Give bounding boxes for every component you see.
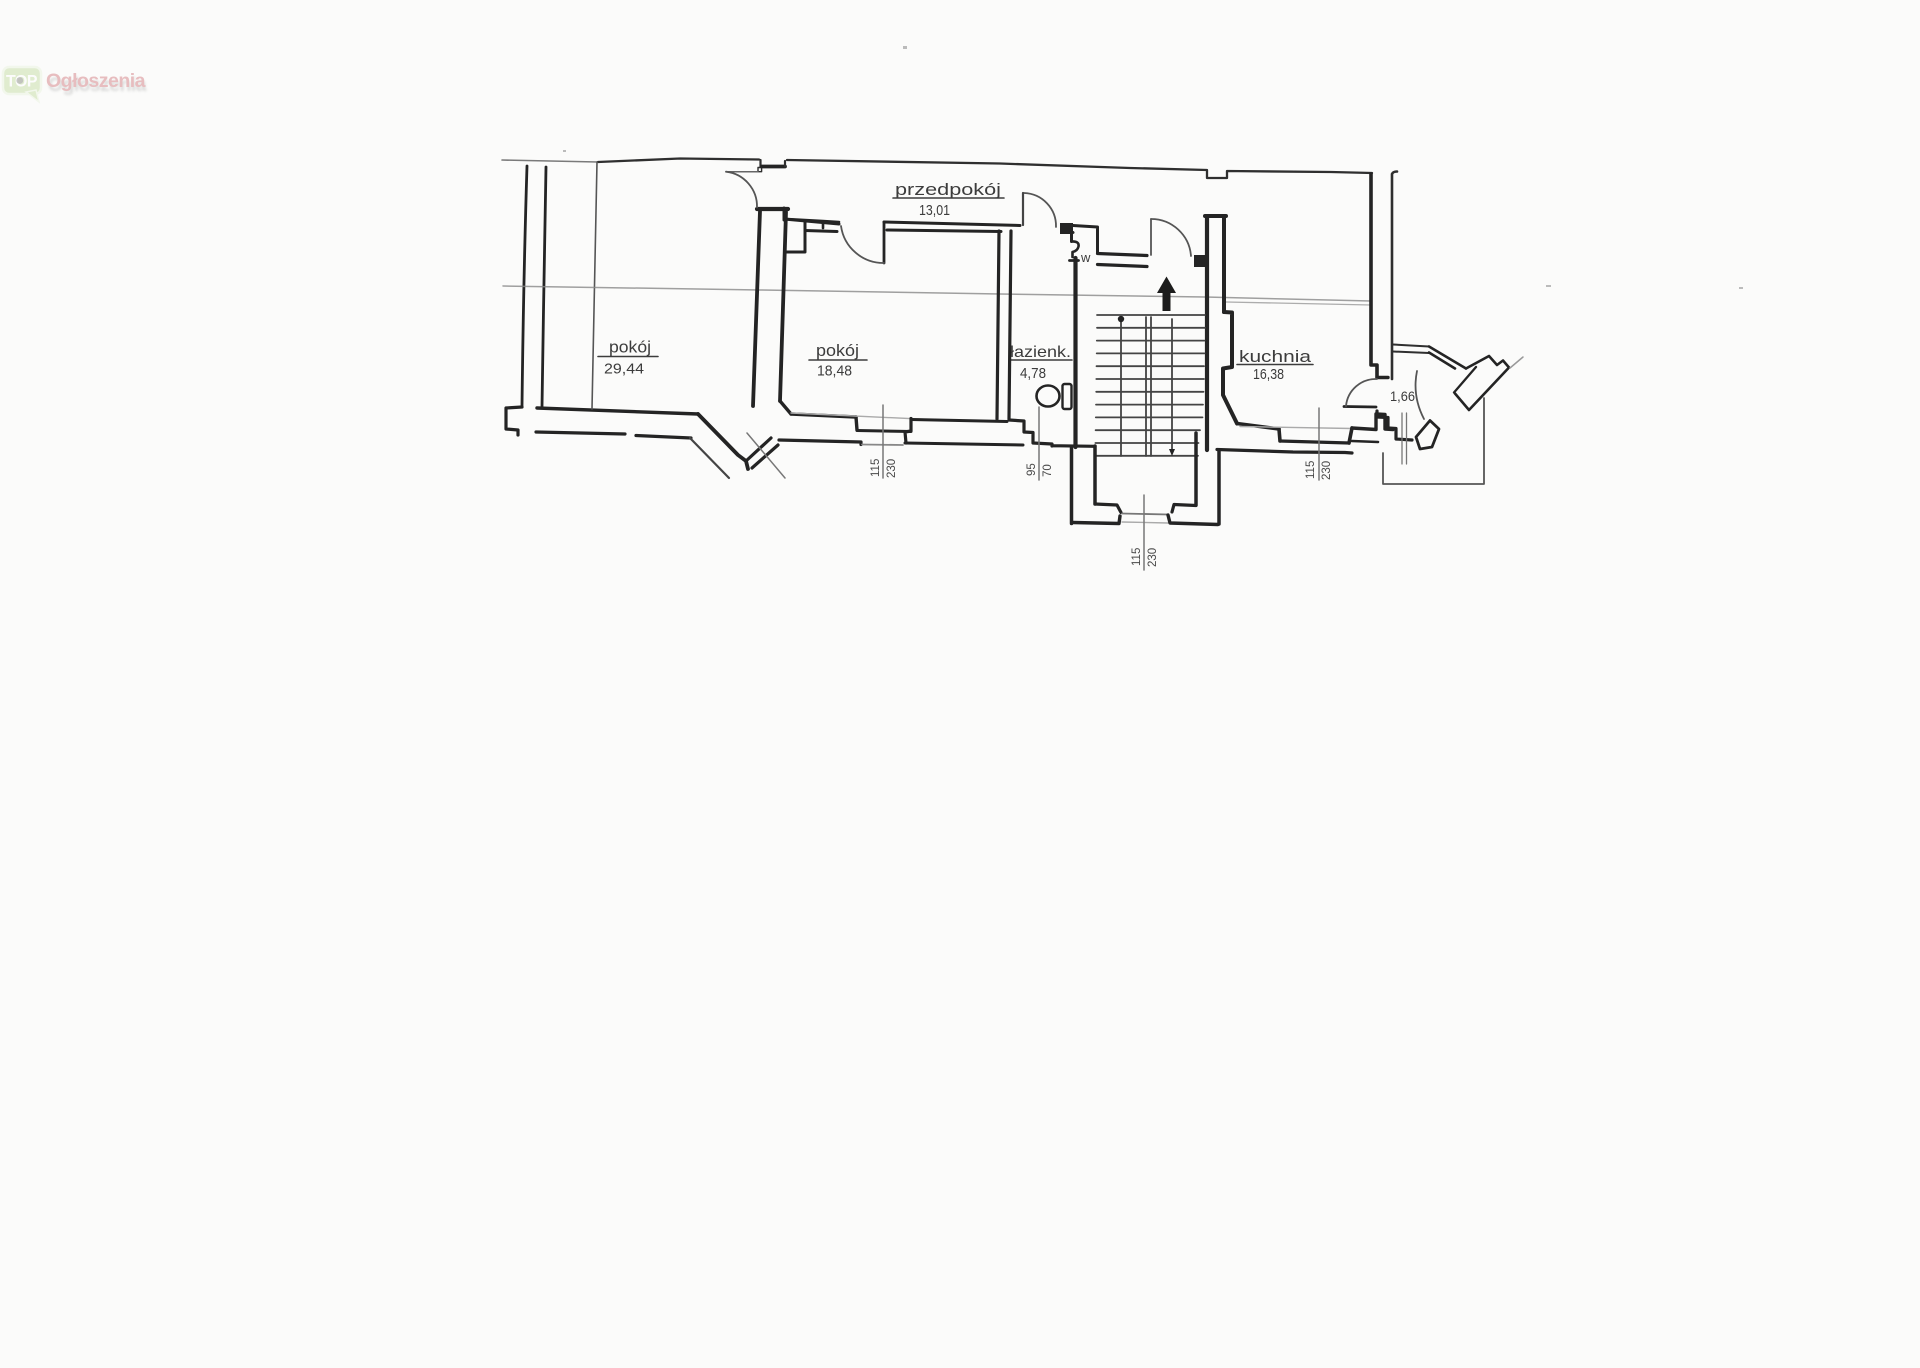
svg-text:95: 95 [1026, 463, 1038, 476]
svg-text:230: 230 [1321, 461, 1333, 480]
svg-text:18,48: 18,48 [817, 363, 852, 380]
svg-text:1,66: 1,66 [1390, 389, 1415, 404]
svg-text:70: 70 [1042, 464, 1054, 477]
svg-text:kuchnia: kuchnia [1239, 347, 1312, 366]
svg-text:230: 230 [1147, 548, 1159, 567]
svg-text:w: w [1080, 250, 1091, 265]
svg-text:29,44: 29,44 [604, 361, 644, 378]
svg-text:115: 115 [870, 459, 882, 477]
svg-text:łazienk.: łazienk. [1010, 344, 1071, 361]
svg-text:przedpokój: przedpokój [895, 180, 1001, 199]
svg-text:230: 230 [886, 459, 898, 478]
svg-text:16,38: 16,38 [1253, 366, 1284, 383]
svg-text:pokój: pokój [609, 339, 651, 357]
svg-text:115: 115 [1131, 548, 1143, 566]
svg-text:115: 115 [1305, 461, 1317, 479]
svg-text:pokój: pokój [816, 342, 859, 360]
svg-text:13,01: 13,01 [919, 202, 950, 219]
svg-text:4,78: 4,78 [1020, 365, 1046, 382]
